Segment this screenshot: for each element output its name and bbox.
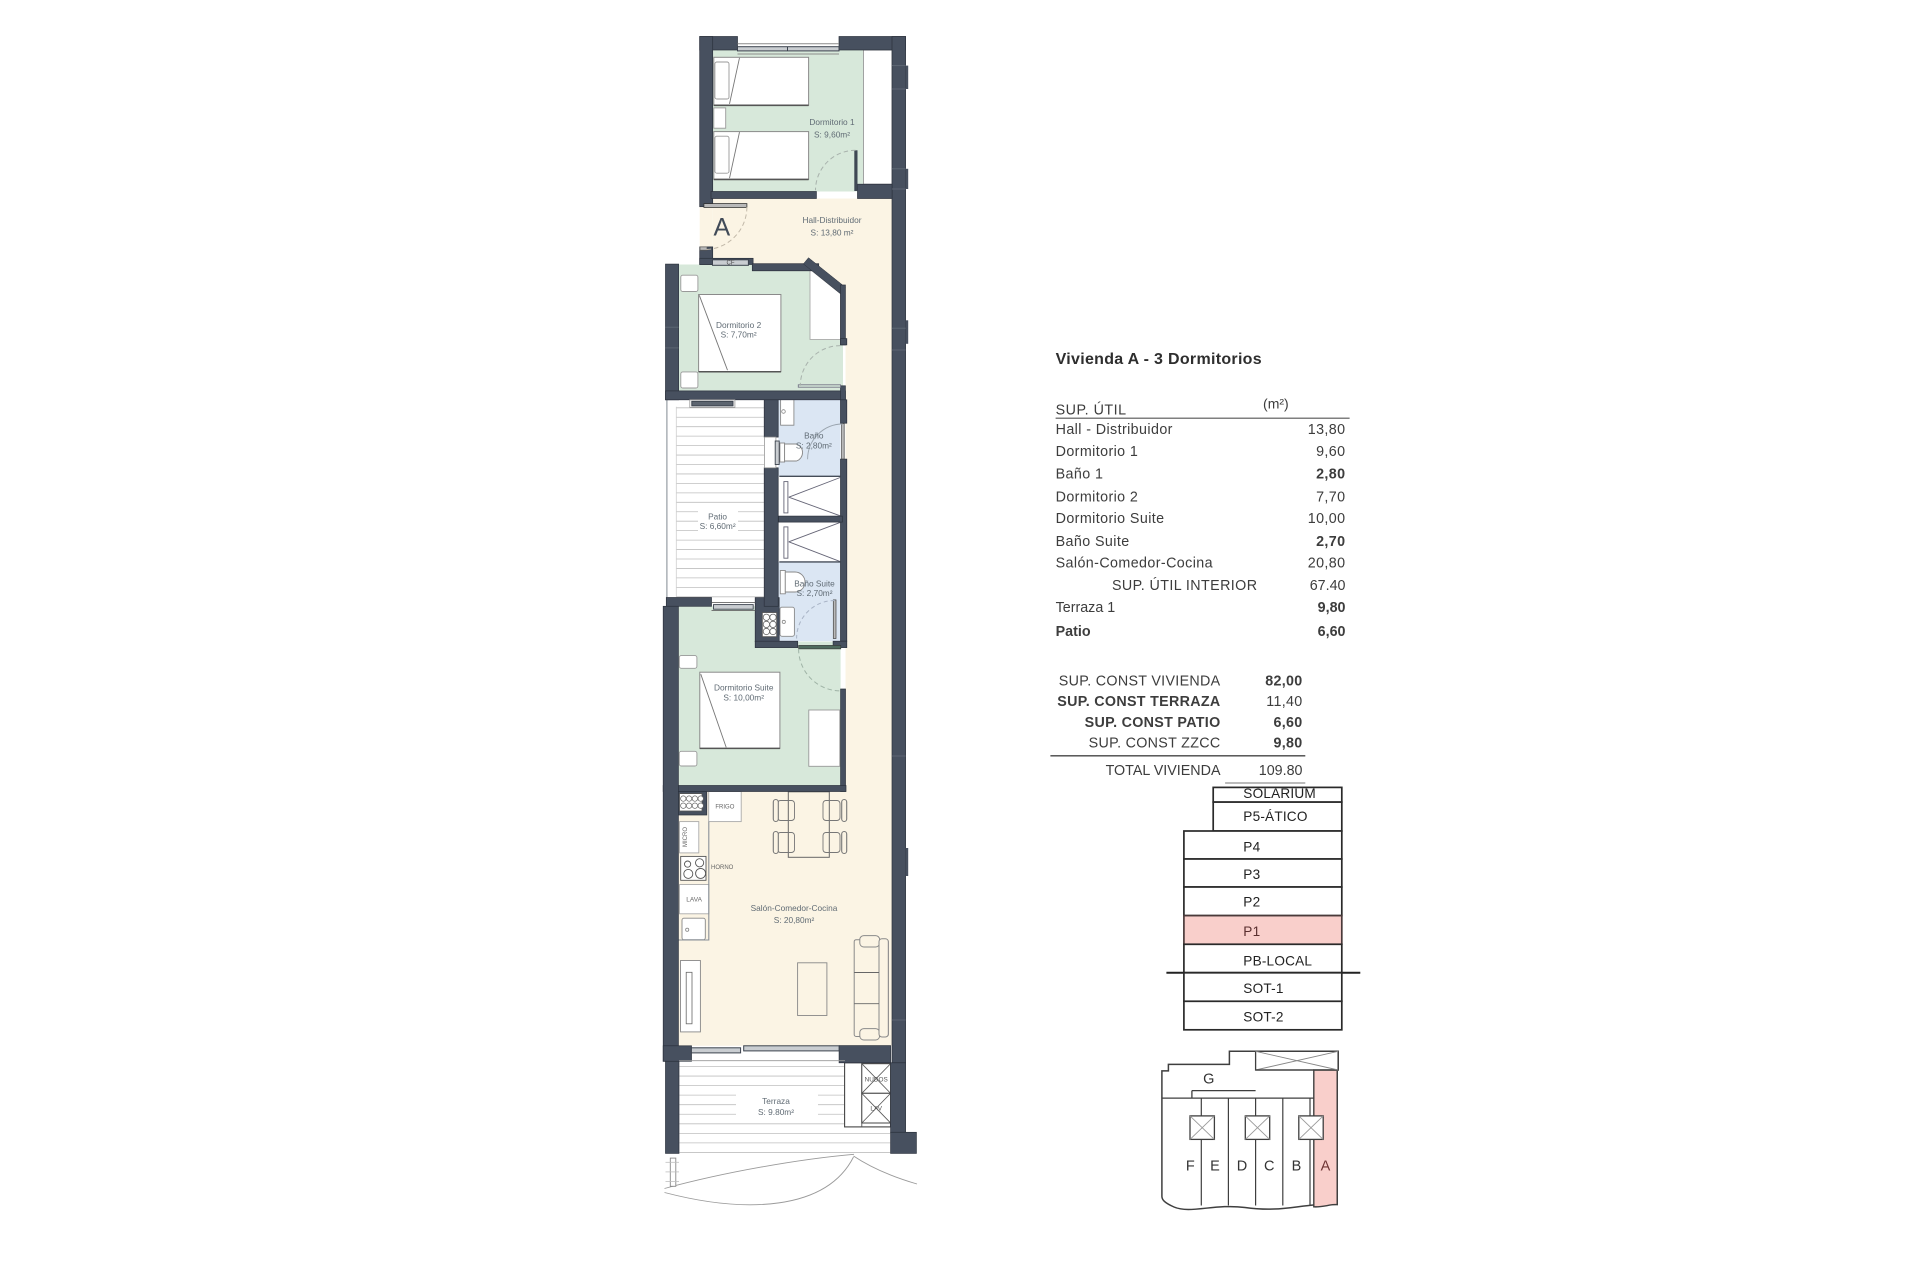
svg-text:Dormitorio 2: Dormitorio 2 xyxy=(1056,489,1139,505)
svg-text:F: F xyxy=(1186,1158,1195,1174)
svg-text:SOT-2: SOT-2 xyxy=(1243,1009,1283,1024)
svg-text:NUDOS: NUDOS xyxy=(865,1077,888,1084)
svg-text:E: E xyxy=(1210,1158,1220,1174)
svg-text:SUP. ÚTIL INTERIOR: SUP. ÚTIL INTERIOR xyxy=(1112,577,1257,594)
svg-text:S: 6,60m²: S: 6,60m² xyxy=(700,521,736,531)
svg-text:Dormitorio Suite: Dormitorio Suite xyxy=(1056,511,1165,527)
svg-text:Salón-Comedor-Cocina: Salón-Comedor-Cocina xyxy=(1056,556,1213,572)
svg-text:B: B xyxy=(1292,1158,1302,1174)
svg-text:PB-LOCAL: PB-LOCAL xyxy=(1243,954,1312,969)
svg-text:Vivienda A - 3 Dormitorios: Vivienda A - 3 Dormitorios xyxy=(1056,351,1262,368)
svg-text:Salón-Comedor-Cocina: Salón-Comedor-Cocina xyxy=(751,903,838,913)
svg-text:S: 9.80m²: S: 9.80m² xyxy=(758,1107,794,1117)
svg-text:6,60: 6,60 xyxy=(1318,624,1346,640)
svg-text:Hall - Distribuidor: Hall - Distribuidor xyxy=(1056,422,1173,438)
svg-text:SUP. CONST VIVIENDA: SUP. CONST VIVIENDA xyxy=(1059,673,1221,689)
svg-text:S: 13,80 m²: S: 13,80 m² xyxy=(811,228,854,238)
svg-text:SUP. ÚTIL: SUP. ÚTIL xyxy=(1056,402,1127,419)
svg-text:S: 20,80m²: S: 20,80m² xyxy=(774,915,815,925)
svg-text:9,60: 9,60 xyxy=(1316,444,1345,460)
svg-text:S: 10,00m²: S: 10,00m² xyxy=(723,692,764,702)
svg-text:P5-ÁTICO: P5-ÁTICO xyxy=(1243,809,1307,824)
svg-text:D: D xyxy=(1237,1158,1247,1174)
svg-text:Baño Suite: Baño Suite xyxy=(1056,534,1130,550)
svg-text:P1: P1 xyxy=(1243,924,1260,939)
svg-text:TOTAL VIVIENDA: TOTAL VIVIENDA xyxy=(1106,763,1221,779)
svg-text:Dormitorio 1: Dormitorio 1 xyxy=(809,117,855,127)
svg-text:Baño: Baño xyxy=(804,431,824,441)
svg-text:6,60: 6,60 xyxy=(1273,715,1302,731)
svg-text:A: A xyxy=(713,214,730,242)
svg-text:P2: P2 xyxy=(1243,895,1260,910)
svg-text:Terraza 1: Terraza 1 xyxy=(1056,600,1116,616)
svg-text:Patio: Patio xyxy=(1056,624,1091,640)
svg-text:LAV: LAV xyxy=(870,1106,882,1113)
svg-text:SUP. CONST ZZCC: SUP. CONST ZZCC xyxy=(1089,735,1221,751)
svg-text:Baño 1: Baño 1 xyxy=(1056,467,1104,483)
svg-text:S: 2,80m²: S: 2,80m² xyxy=(796,440,832,450)
svg-text:G: G xyxy=(1203,1071,1214,1087)
svg-text:P4: P4 xyxy=(1243,840,1260,855)
svg-text:C: C xyxy=(1264,1158,1274,1174)
svg-text:20,80: 20,80 xyxy=(1308,556,1346,572)
svg-text:67.40: 67.40 xyxy=(1310,578,1346,594)
svg-text:SOT-1: SOT-1 xyxy=(1243,981,1283,996)
svg-text:2,70: 2,70 xyxy=(1316,534,1345,550)
svg-text:Dormitorio 2: Dormitorio 2 xyxy=(716,320,762,330)
svg-text:Terraza: Terraza xyxy=(762,1096,790,1106)
svg-text:CF: CF xyxy=(727,260,735,266)
svg-text:S: 2,70m²: S: 2,70m² xyxy=(797,588,833,598)
svg-text:SUP. CONST TERRAZA: SUP. CONST TERRAZA xyxy=(1057,694,1220,710)
svg-text:Baño Suite: Baño Suite xyxy=(794,578,835,588)
svg-text:9,80: 9,80 xyxy=(1273,735,1302,751)
svg-text:P3: P3 xyxy=(1243,867,1260,882)
svg-text:7,70: 7,70 xyxy=(1316,489,1345,505)
svg-text:2,80: 2,80 xyxy=(1316,467,1345,483)
svg-text:LAVA: LAVA xyxy=(686,897,702,904)
svg-text:Dormitorio Suite: Dormitorio Suite xyxy=(714,683,774,693)
svg-text:Dormitorio 1: Dormitorio 1 xyxy=(1056,444,1139,460)
svg-text:MICRO: MICRO xyxy=(683,827,689,847)
svg-text:10,00: 10,00 xyxy=(1308,511,1346,527)
svg-text:FRIGO: FRIGO xyxy=(715,805,734,811)
svg-text:(m²): (m²) xyxy=(1263,396,1289,412)
svg-text:SOLARIUM: SOLARIUM xyxy=(1243,786,1316,801)
svg-text:A: A xyxy=(1321,1158,1331,1174)
svg-text:S: 9,60m²: S: 9,60m² xyxy=(814,130,850,140)
svg-text:9,80: 9,80 xyxy=(1318,600,1346,616)
svg-text:13,80: 13,80 xyxy=(1308,422,1346,438)
svg-text:Hall-Distribuidor: Hall-Distribuidor xyxy=(802,215,861,225)
svg-text:109.80: 109.80 xyxy=(1259,763,1303,779)
svg-text:11,40: 11,40 xyxy=(1266,694,1302,710)
svg-text:82,00: 82,00 xyxy=(1265,673,1302,689)
svg-text:SUP. CONST PATIO: SUP. CONST PATIO xyxy=(1085,715,1221,731)
svg-text:HORNO: HORNO xyxy=(711,865,734,871)
svg-text:S: 7,70m²: S: 7,70m² xyxy=(721,330,757,340)
